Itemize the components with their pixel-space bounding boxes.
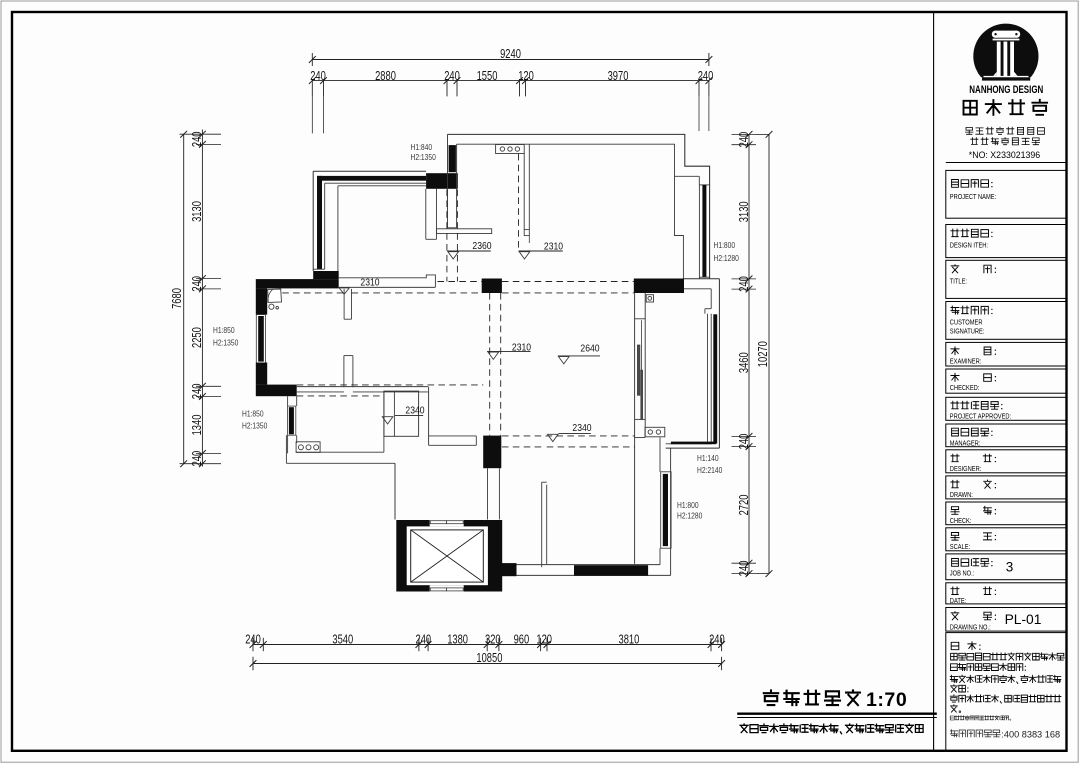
- svg-text:3130: 3130: [737, 201, 751, 222]
- svg-text:PROJECT APPROVED:: PROJECT APPROVED:: [950, 413, 1012, 421]
- svg-text:H2:1350: H2:1350: [242, 421, 267, 431]
- svg-text:3810: 3810: [618, 633, 639, 647]
- svg-text:1:70: 1:70: [866, 689, 907, 711]
- svg-text:H1:140: H1:140: [697, 453, 719, 463]
- svg-text:7680: 7680: [171, 288, 185, 309]
- svg-text:240: 240: [737, 434, 751, 450]
- svg-text:CHECK:: CHECK:: [950, 518, 972, 526]
- svg-text:2340: 2340: [405, 405, 424, 417]
- svg-text:PL-01: PL-01: [1005, 612, 1042, 627]
- svg-text:2720: 2720: [737, 495, 751, 516]
- svg-text:PROJECT NAME:: PROJECT NAME:: [950, 193, 997, 201]
- svg-text:CUSTOMER: CUSTOMER: [950, 319, 983, 327]
- svg-text:MANAGER:: MANAGER:: [950, 440, 981, 448]
- svg-text:H2:2140: H2:2140: [697, 465, 722, 475]
- svg-text:240: 240: [709, 633, 725, 647]
- svg-text:2250: 2250: [191, 327, 205, 348]
- svg-text:SIGNATURE:: SIGNATURE:: [950, 328, 985, 336]
- svg-text:240: 240: [698, 69, 714, 83]
- svg-text:3970: 3970: [608, 69, 629, 83]
- svg-text:DRAWING NO.:: DRAWING NO.:: [950, 624, 991, 632]
- svg-text:2340: 2340: [572, 422, 591, 434]
- svg-text:H2:1350: H2:1350: [213, 338, 238, 348]
- svg-text:240: 240: [191, 451, 205, 467]
- svg-text:240: 240: [191, 384, 205, 400]
- svg-text:320: 320: [485, 633, 501, 647]
- svg-text:3460: 3460: [737, 352, 751, 373]
- svg-text:2310: 2310: [512, 342, 531, 354]
- svg-text:CHECKED:: CHECKED:: [950, 385, 980, 393]
- svg-text:240: 240: [737, 561, 751, 577]
- svg-text:H1:800: H1:800: [714, 240, 736, 250]
- svg-text:3130: 3130: [191, 201, 205, 222]
- svg-text:240: 240: [737, 132, 751, 148]
- svg-text:2310: 2310: [544, 241, 563, 253]
- svg-text:1340: 1340: [191, 415, 205, 436]
- svg-text:3540: 3540: [332, 633, 353, 647]
- svg-text:SCALE:: SCALE:: [950, 543, 971, 551]
- svg-text:DRAWN:: DRAWN:: [950, 491, 973, 499]
- svg-text:H1:800: H1:800: [677, 500, 699, 510]
- svg-text:2310: 2310: [360, 277, 379, 289]
- svg-text:1550: 1550: [477, 69, 498, 83]
- svg-text:240: 240: [444, 69, 460, 83]
- svg-text:120: 120: [518, 69, 534, 83]
- svg-text:*NO: X233021396: *NO: X233021396: [969, 150, 1041, 160]
- svg-text:240: 240: [245, 633, 261, 647]
- svg-text:H1:840: H1:840: [411, 142, 433, 152]
- svg-text:240: 240: [737, 276, 751, 292]
- svg-text:1380: 1380: [447, 633, 468, 647]
- svg-text:2880: 2880: [375, 69, 396, 83]
- svg-text:H2:1280: H2:1280: [677, 510, 702, 520]
- svg-text:240: 240: [416, 633, 432, 647]
- svg-text:9240: 9240: [500, 48, 521, 62]
- svg-text:10270: 10270: [756, 341, 770, 367]
- svg-text:JOB NO.:: JOB NO.:: [950, 570, 975, 578]
- svg-text:H1:850: H1:850: [213, 325, 235, 335]
- svg-text:2360: 2360: [472, 240, 491, 252]
- svg-text::400 8383 168: :400 8383 168: [1001, 730, 1060, 740]
- svg-text:H1:850: H1:850: [242, 409, 264, 419]
- svg-text:960: 960: [514, 633, 530, 647]
- svg-text:H2:1350: H2:1350: [411, 152, 436, 162]
- svg-text:DATE:: DATE:: [950, 598, 967, 606]
- svg-text:10850: 10850: [476, 652, 502, 666]
- svg-text:DESIGNER:: DESIGNER:: [950, 465, 982, 473]
- svg-text:2640: 2640: [580, 343, 599, 355]
- svg-text:EXAMINER:: EXAMINER:: [950, 358, 982, 366]
- svg-text:240: 240: [191, 132, 205, 148]
- svg-text:DESIGN ITEH:: DESIGN ITEH:: [950, 242, 988, 250]
- svg-text:NANHONG DESIGN: NANHONG DESIGN: [969, 84, 1043, 96]
- svg-text:120: 120: [536, 633, 552, 647]
- svg-text:240: 240: [310, 69, 326, 83]
- svg-text:H2:1280: H2:1280: [714, 253, 739, 263]
- svg-text:240: 240: [191, 276, 205, 292]
- svg-text:3: 3: [1006, 560, 1014, 575]
- svg-text:TITLE:: TITLE:: [950, 278, 967, 286]
